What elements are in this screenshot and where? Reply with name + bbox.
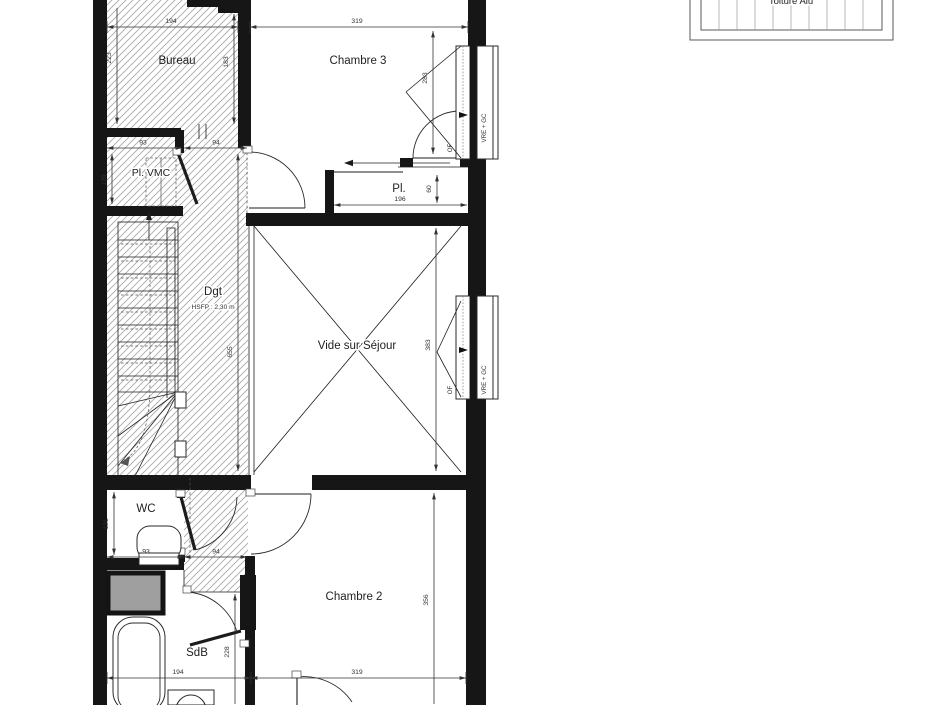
window-note-label: VRE + GC [481, 113, 488, 143]
dim-degagement-length: 655 [227, 346, 234, 358]
dim-chambre3-height: 283 [422, 72, 429, 84]
room-label-sdb: SdB [186, 647, 208, 659]
degagement-door-arc [249, 152, 305, 208]
handrail-post-bottom [175, 441, 186, 457]
floor-plan-page: OF VRE + GC OF VRE + GC 194 319 223 [0, 0, 940, 705]
window-chambre3: OF VRE + GC [406, 46, 498, 159]
dim-placard-width: 196 [394, 196, 406, 203]
wall-chambre3-door [400, 158, 413, 167]
room-label-bureau: Bureau [158, 55, 195, 67]
window-vide: OF VRE + GC [437, 296, 498, 399]
room-label-chambre3: Chambre 3 [330, 55, 387, 67]
dim-corridor-bottom: 94 [212, 549, 220, 556]
dim-sdb-width: 194 [172, 669, 184, 676]
dim-wc-height: 121 [103, 518, 110, 530]
casement-swing-line-1 [406, 46, 461, 92]
bathtub-outer [113, 617, 165, 705]
chambre2-south-door-arc [297, 677, 352, 702]
duct-shaft [108, 573, 163, 613]
wall-right-top [468, 0, 486, 46]
window-note-label: VRE + GC [481, 365, 488, 395]
wall-top-stub-a [187, 0, 218, 7]
washbasin-counter [168, 690, 214, 705]
dim-chambre2-height: 356 [423, 594, 430, 606]
dim-sdb-height: 228 [224, 646, 231, 658]
dim-plvmc-width: 93 [139, 140, 147, 147]
wall-stair-top [93, 206, 183, 216]
dim-bureau-width: 194 [165, 18, 177, 25]
wall-left-exterior [93, 0, 107, 705]
wall-bureau-chambre3 [238, 0, 251, 148]
sliding-door-arrow-head [344, 160, 353, 166]
wall-bottom-right [312, 475, 468, 490]
sdb-door-arc [188, 592, 237, 632]
wall-vide-top [246, 213, 468, 226]
room-note-dgt: HSFP : 2,30 m [191, 304, 235, 311]
wall-right-bottom [466, 399, 486, 705]
room-label-vide: Vide sur Séjour [318, 340, 397, 352]
window-stile [470, 296, 477, 399]
floor-plan-drawing: OF VRE + GC OF VRE + GC 194 319 223 [0, 0, 940, 705]
wall-bureau-bottom [107, 128, 181, 137]
dim-wc-width: 93 [142, 549, 150, 556]
room-label-wc: WC [136, 503, 155, 515]
room-label-chambre2: Chambre 2 [326, 591, 383, 603]
window-type-label: OF [447, 143, 454, 152]
dim-chambre2-width: 319 [351, 669, 363, 676]
dim-bureau-door-side: 183 [223, 56, 230, 68]
room-label-dgt: Dgt [204, 286, 223, 298]
handrail-post-top [175, 392, 186, 408]
dim-vide-height: 383 [425, 339, 432, 351]
wall-bottom-left [93, 475, 251, 490]
dim-chambre3-width: 319 [351, 18, 363, 25]
detail-box-title: Toiture Alu [769, 0, 813, 7]
room-label-placard: Pl. [392, 183, 405, 195]
hatch-degagement [107, 0, 248, 592]
room-label-plvmc: Pl. VMC [132, 167, 171, 179]
window-sill [493, 296, 498, 399]
window-stile [470, 46, 477, 159]
window-sill [493, 46, 498, 159]
chambre2-door-arc [251, 494, 311, 554]
dim-corridor-top: 94 [212, 140, 220, 147]
dim-bureau-height: 223 [106, 52, 113, 64]
wall-right-middle [468, 159, 486, 296]
hatched-zones [107, 0, 248, 592]
dim-plvmc-height: 120 [101, 174, 108, 186]
window-type-label: OF [447, 385, 454, 394]
wall-placard-left [325, 170, 334, 213]
wall-chambre2-left-pier [240, 575, 256, 630]
roof-detail-box: Toiture Alu [690, 0, 893, 40]
sdb-door-leaf [190, 631, 241, 645]
dim-placard-depth: 60 [426, 185, 433, 193]
